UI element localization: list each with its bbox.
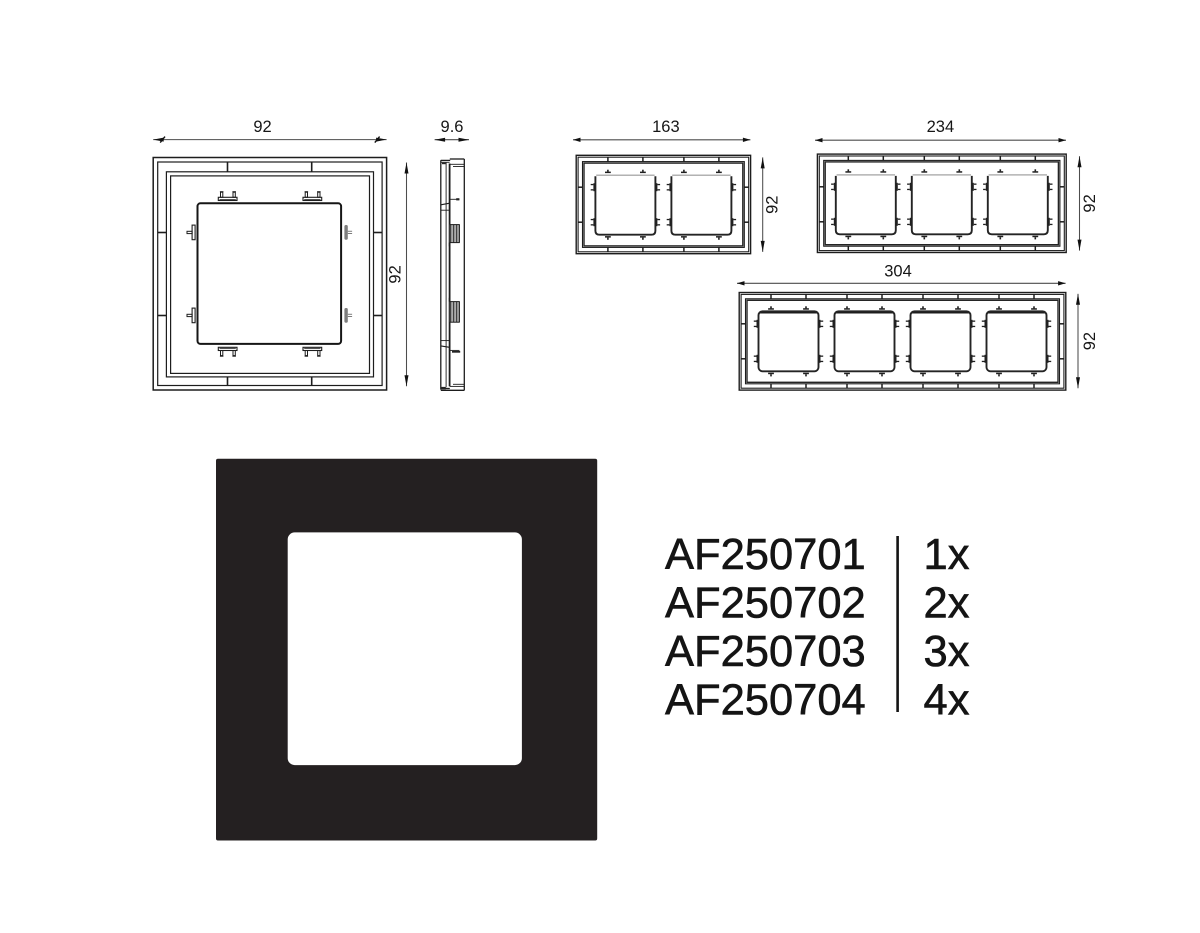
svg-text:234: 234: [927, 118, 955, 136]
svg-text:AF250704: AF250704: [665, 677, 866, 725]
svg-text:92: 92: [1081, 332, 1099, 350]
svg-text:AF250702: AF250702: [665, 580, 866, 628]
svg-text:1x: 1x: [924, 531, 970, 579]
svg-text:3x: 3x: [924, 628, 970, 676]
svg-text:AF250701: AF250701: [665, 531, 866, 579]
svg-text:92: 92: [387, 265, 405, 283]
svg-text:304: 304: [884, 263, 912, 281]
svg-text:2x: 2x: [924, 580, 970, 628]
svg-text:92: 92: [253, 118, 271, 136]
svg-text:AF250703: AF250703: [665, 628, 866, 676]
svg-text:9.6: 9.6: [441, 118, 464, 136]
svg-text:4x: 4x: [924, 677, 970, 725]
svg-text:92: 92: [764, 196, 782, 214]
svg-text:92: 92: [1081, 194, 1099, 212]
svg-text:163: 163: [652, 118, 680, 136]
